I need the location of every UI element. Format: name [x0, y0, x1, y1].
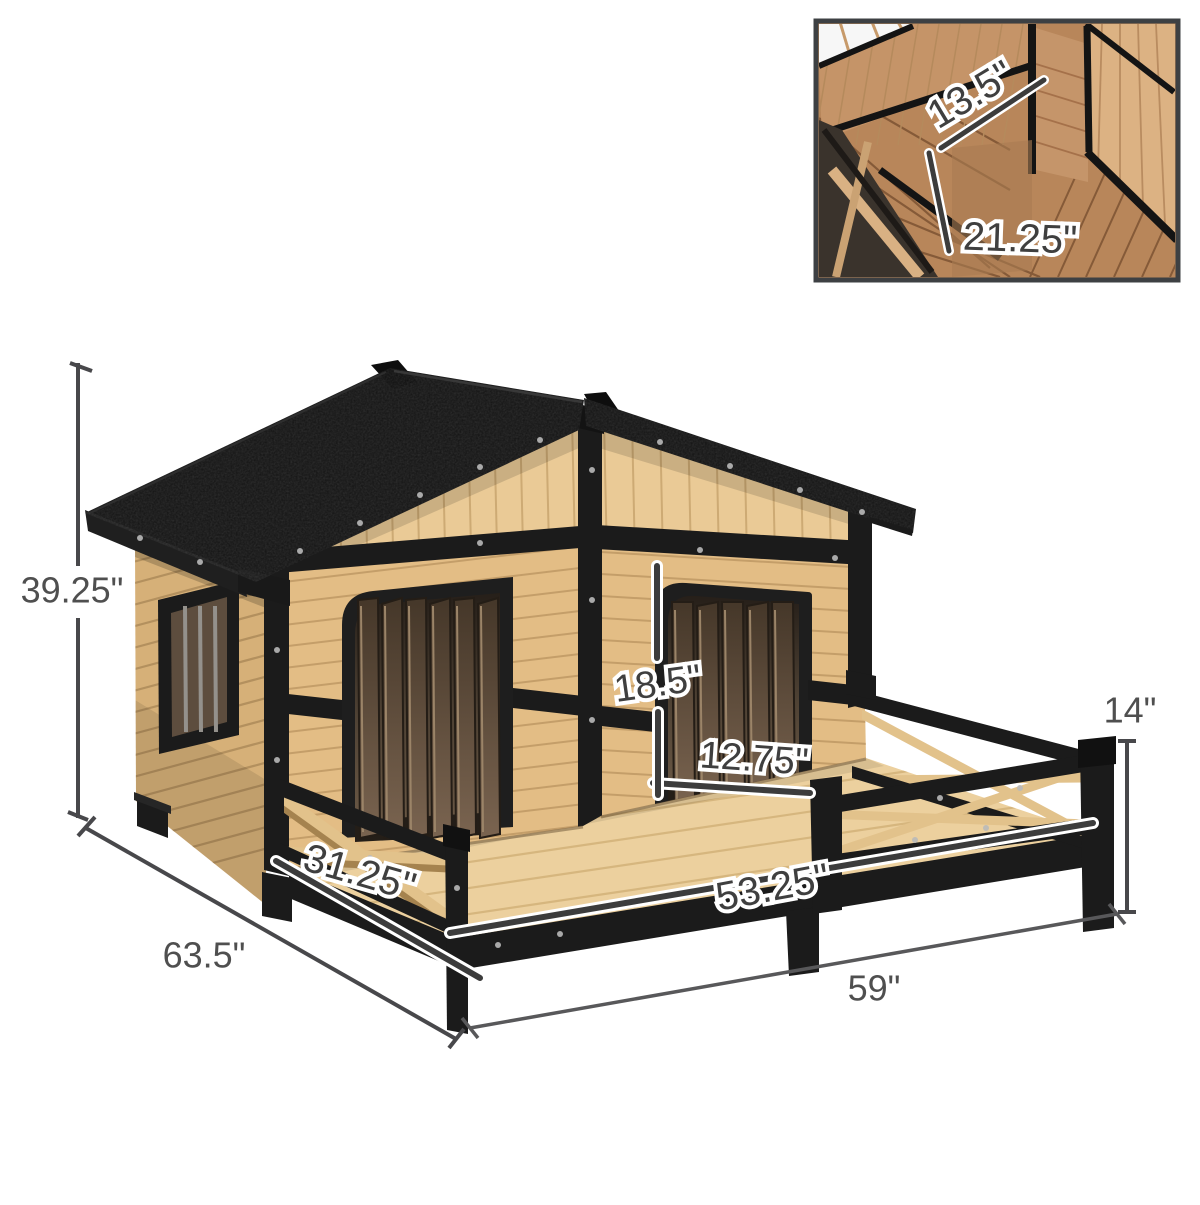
svg-text:39.25": 39.25": [21, 570, 124, 611]
svg-text:63.5": 63.5": [163, 935, 246, 976]
svg-text:14": 14": [1104, 690, 1157, 731]
svg-text:12.75": 12.75": [699, 734, 810, 783]
svg-text:21.25": 21.25": [962, 215, 1078, 263]
svg-text:59": 59": [848, 968, 901, 1009]
